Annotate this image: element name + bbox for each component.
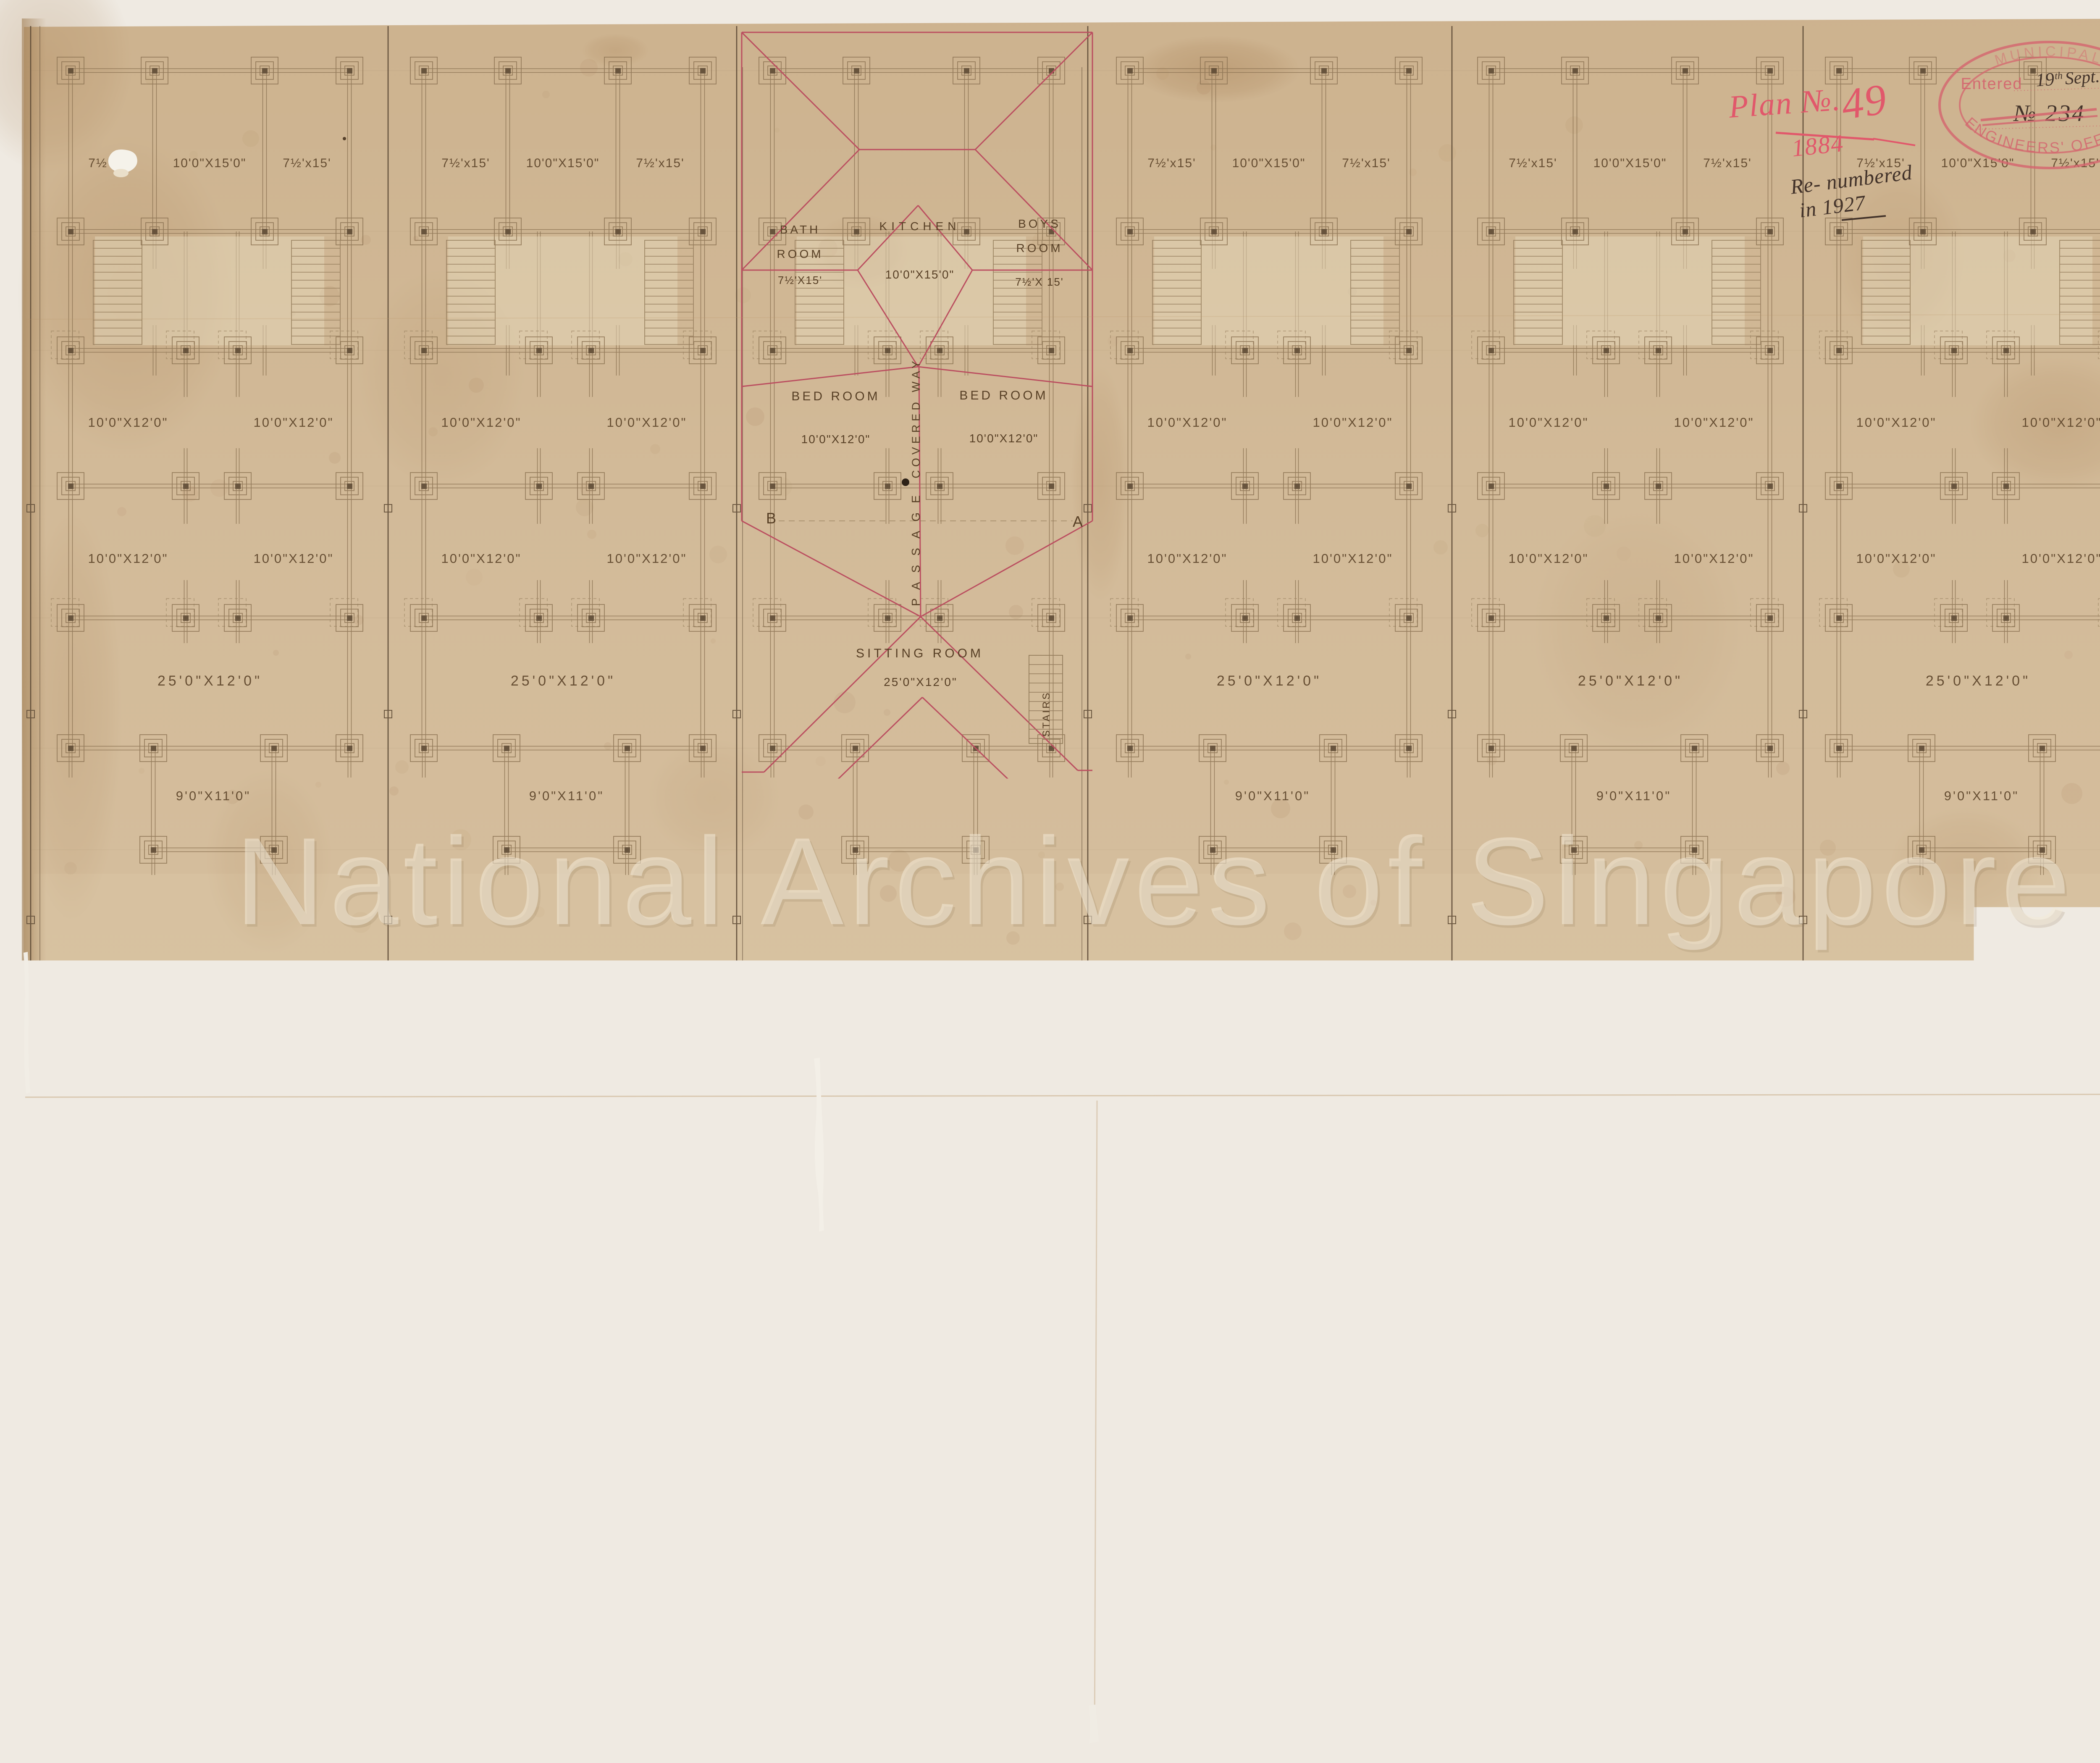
svg-text:Municipal Engineer.: Municipal Engineer.	[1669, 1209, 1808, 1226]
svg-text:P L A N: P L A N	[908, 1268, 1027, 1292]
svg-text:7½'x15': 7½'x15'	[1509, 156, 1557, 170]
svg-text:10'0"X12'0": 10'0"X12'0"	[969, 432, 1039, 445]
svg-text:GATE: GATE	[1247, 1232, 1302, 1248]
svg-text:National Archives of Singapore: National Archives of Singapore	[235, 812, 2070, 951]
svg-text:10'0"X12'0": 10'0"X12'0"	[1856, 415, 1937, 430]
svg-text:FRONT ELEVATION: FRONT ELEVATION	[768, 1613, 980, 1633]
svg-text:KITCHEN: KITCHEN	[879, 220, 961, 233]
svg-text:10'0"X15'0": 10'0"X15'0"	[1593, 156, 1667, 170]
svg-text:49: 49	[1838, 75, 1890, 129]
svg-text:4'-9½": 4'-9½"	[1250, 1607, 1263, 1637]
svg-text:10'0"X12'0": 10'0"X12'0"	[1674, 551, 1754, 566]
svg-text:18": 18"	[792, 1569, 807, 1580]
svg-text:GATE: GATE	[1602, 1231, 1657, 1247]
svg-text:25'0"X12'0": 25'0"X12'0"	[1578, 673, 1683, 689]
svg-text:31½: 31½	[1482, 1628, 1503, 1641]
svg-text:14": 14"	[712, 1477, 727, 1489]
svg-text:9'0"X11'0": 9'0"X11'0"	[1944, 788, 2019, 803]
svg-text:18": 18"	[914, 1569, 929, 1580]
svg-text:—OF—: —OF—	[249, 1419, 314, 1437]
svg-text:14": 14"	[912, 1477, 927, 1489]
svg-text:18": 18"	[879, 1569, 894, 1580]
svg-text:10'0"X12'0": 10'0"X12'0"	[254, 415, 334, 430]
svg-text:Sept. 84: Sept. 84	[2064, 65, 2100, 88]
svg-text:7½'x15': 7½'x15'	[283, 156, 331, 170]
svg-text:29: 29	[1645, 1061, 1664, 1082]
svg-text:SITTING ROOM: SITTING ROOM	[856, 646, 984, 660]
svg-text:ROOM: ROOM	[1016, 242, 1063, 255]
svg-text:25'0"X12'0": 25'0"X12'0"	[1217, 673, 1322, 689]
svg-text:18": 18"	[829, 1569, 844, 1580]
svg-text:10'0"X12'0": 10'0"X12'0"	[1147, 551, 1228, 566]
svg-text:9'0"X12'0": 9'0"X12'0"	[903, 782, 969, 795]
svg-text:18": 18"	[1367, 1558, 1382, 1569]
svg-text:18": 18"	[1316, 1558, 1331, 1569]
svg-text:TO BE BUILT IN NORTH BRIDG: TO BE BUILT IN NORTH BRIDGE RD	[126, 1492, 474, 1511]
svg-text:10'0"X12'0": 10'0"X12'0"	[2022, 415, 2100, 430]
svg-text:P ROPERTY OF HADJEE DRAMAN: P ROPERTY OF HADJEE DRAMAN	[164, 1558, 502, 1577]
svg-text:9'0"X11'0": 9'0"X11'0"	[529, 788, 604, 803]
svg-text:10'0"X15'0": 10'0"X15'0"	[173, 156, 247, 170]
svg-text:27": 27"	[1484, 1605, 1500, 1618]
svg-text:9'0"X11'0": 9'0"X11'0"	[176, 788, 251, 803]
svg-text:NORTH: NORTH	[1793, 1548, 1806, 1609]
svg-text:7½'X15': 7½'X15'	[778, 274, 822, 286]
svg-text:10'0"X12'0": 10'0"X12'0"	[801, 433, 871, 446]
svg-text:STAIRS: STAIRS	[1041, 691, 1052, 737]
svg-text:19: 19	[2035, 69, 2055, 91]
svg-text:— SCALE 8FEET TO AN INCH—: — SCALE 8FEET TO AN INCH—	[180, 1645, 493, 1664]
svg-text:Singapore,: Singapore,	[1544, 1064, 1624, 1085]
svg-text:10'0"X15'0": 10'0"X15'0"	[885, 268, 955, 281]
svg-text:1884: 1884	[1790, 129, 1845, 162]
svg-text:SULTAN: SULTAN	[1741, 1483, 1848, 1498]
svg-text:18": 18"	[1280, 1558, 1295, 1569]
svg-text:22½: 22½	[1482, 1581, 1503, 1594]
svg-text:10'0"X12'0": 10'0"X12'0"	[88, 551, 168, 566]
svg-text:10'0"X15'0": 10'0"X15'0"	[1232, 156, 1306, 170]
svg-text:18": 18"	[994, 1569, 1009, 1580]
svg-text:PASSAGE: PASSAGE	[909, 486, 922, 606]
svg-text:25'0"X12'0": 25'0"X12'0"	[1926, 673, 2031, 689]
svg-text:18": 18"	[1402, 1558, 1417, 1569]
svg-text:10'0"X12'0": 10'0"X12'0"	[1313, 415, 1393, 430]
svg-text:7½'X 15': 7½'X 15'	[1015, 276, 1064, 288]
svg-text:President Municipal Commission: President Municipal Commissioners.	[1567, 1142, 1818, 1160]
svg-text:BATH: BATH	[780, 223, 821, 236]
svg-text:SECTION ON A. B: SECTION ON A. B	[1286, 1648, 1490, 1668]
svg-text:25'0"X12'0": 25'0"X12'0"	[511, 673, 616, 689]
svg-text:10'0"X15'0": 10'0"X15'0"	[526, 156, 600, 170]
svg-text:10'0"X12'0": 10'0"X12'0"	[1147, 415, 1228, 430]
svg-text:4'-9½": 4'-9½"	[1454, 1608, 1467, 1638]
svg-text:18": 18"	[1203, 1558, 1218, 1569]
svg-text:7½'x15': 7½'x15'	[1147, 156, 1196, 170]
svg-text:A: A	[1073, 513, 1083, 530]
svg-text:14": 14"	[791, 1477, 806, 1489]
svg-text:9'0"X11'0": 9'0"X11'0"	[1235, 788, 1310, 803]
svg-text:—PLAN—: —PLAN—	[229, 1383, 331, 1403]
svg-text:10'0"X12'0": 10'0"X12'0"	[607, 415, 687, 430]
svg-text:GATE: GATE	[548, 1239, 603, 1255]
svg-text:7½'x15': 7½'x15'	[1703, 156, 1752, 170]
svg-text:10'0"X12'0": 10'0"X12'0"	[254, 551, 334, 566]
svg-text:GATE: GATE	[172, 1241, 227, 1257]
svg-text:18": 18"	[714, 1569, 729, 1580]
svg-text:COMPOUND: COMPOUND	[907, 981, 923, 1174]
svg-text:10'0"X12'0": 10'0"X12'0"	[1509, 551, 1589, 566]
svg-text:10'0"X12'0": 10'0"X12'0"	[1856, 551, 1937, 566]
svg-text:Municipal Building Regulatio: Municipal Building Regulations.	[1515, 1024, 1782, 1045]
svg-text:14": 14"	[990, 1477, 1004, 1489]
svg-text:BRIDGE RD: BRIDGE RD	[1793, 1372, 1806, 1474]
svg-text:This plan is in accordance wit: This plan is in accordance with the	[1516, 996, 1802, 1017]
svg-text:22½: 22½	[1200, 1581, 1221, 1594]
svg-text:GATE: GATE	[901, 1234, 955, 1250]
svg-text:10'0"X12'0": 10'0"X12'0"	[441, 551, 522, 566]
svg-text:9'0"X11'0": 9'0"X11'0"	[1596, 788, 1671, 803]
svg-text:10'0"X12'0": 10'0"X12'0"	[2022, 551, 2100, 566]
svg-text:ROOM: ROOM	[777, 247, 823, 260]
svg-text:BED ROOM: BED ROOM	[959, 389, 1048, 402]
svg-text:—SIX COMPOUND HOUSES—: —SIX COMPOUND HOUSES—	[160, 1452, 463, 1471]
svg-text:BED ROOM: BED ROOM	[791, 389, 880, 403]
svg-text:TILE ROOF: TILE ROOF	[780, 1384, 904, 1399]
svg-text:BOYS: BOYS	[1018, 217, 1061, 230]
svg-text:7½'x15': 7½'x15'	[441, 156, 490, 170]
svg-text:COVERED WAY: COVERED WAY	[910, 357, 922, 478]
svg-text:th: th	[2054, 70, 2063, 81]
svg-text:18": 18"	[1482, 1558, 1497, 1569]
svg-text:25'0"X12'0": 25'0"X12'0"	[157, 673, 262, 689]
svg-text:7½'x15': 7½'x15'	[1342, 156, 1391, 170]
svg-text:10'0"X12'0": 10'0"X12'0"	[1313, 551, 1393, 566]
svg-text:25'0"X12'0": 25'0"X12'0"	[884, 675, 958, 688]
svg-text:10'0"X12'0": 10'0"X12'0"	[1674, 415, 1754, 430]
svg-text:10'0"X12'0": 10'0"X12'0"	[1509, 415, 1589, 430]
svg-text:— 200 FEET INSIDE—: — 200 FEET INSIDE—	[210, 1518, 423, 1536]
svg-text:27": 27"	[1202, 1605, 1218, 1618]
svg-text:10'0"X12'0": 10'0"X12'0"	[441, 415, 522, 430]
svg-text:GATE: GATE	[1949, 1230, 2003, 1246]
svg-text:B: B	[766, 510, 776, 527]
svg-text:BLOCK PLAN: BLOCK PLAN	[1765, 1638, 1923, 1658]
svg-text:7½'x15': 7½'x15'	[636, 156, 685, 170]
svg-text:10'0"X12'0": 10'0"X12'0"	[607, 551, 687, 566]
svg-text:10'0"X12'0": 10'0"X12'0"	[88, 415, 168, 430]
svg-text:Sept 1884: Sept 1884	[1686, 1061, 1763, 1082]
svg-text:31½: 31½	[1200, 1628, 1221, 1641]
svg-text:Entered: Entered	[1961, 75, 2022, 93]
svg-text:MINTO RD: MINTO RD	[1850, 1382, 1864, 1474]
